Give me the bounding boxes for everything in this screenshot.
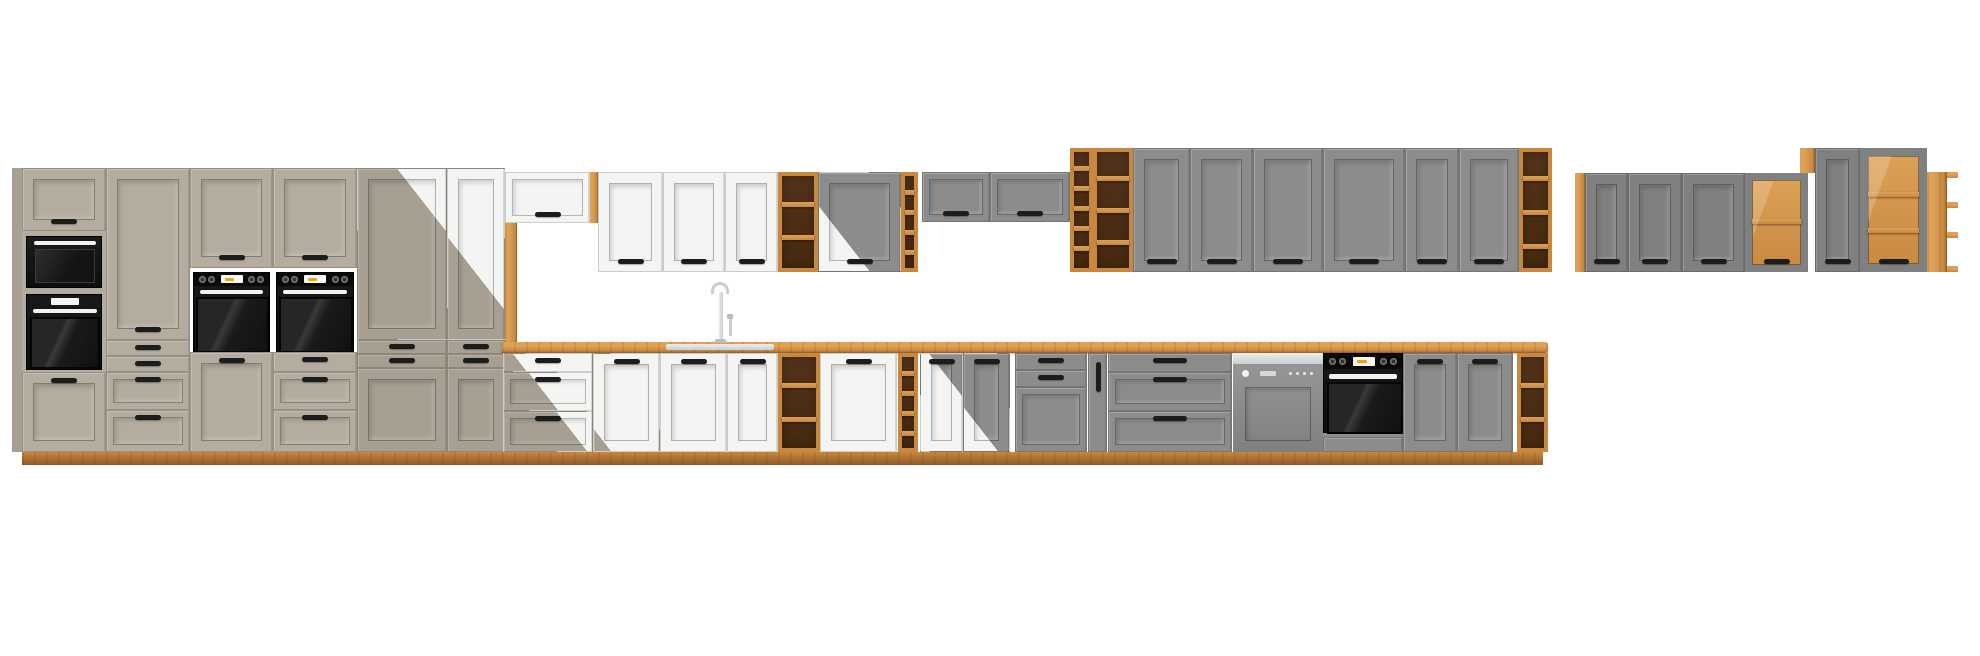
glass-wall-cabinet [1745,173,1808,272]
door-handle [681,259,707,264]
base-drawer [1108,372,1232,411]
larder-lower-door [357,368,447,452]
drawer-handle [1038,375,1064,380]
door-handle [1017,211,1043,216]
oak-open-end-shelf [1519,148,1552,272]
door-handle [681,359,707,364]
corner-shelf-arm [1947,266,1958,272]
oak-wall-wine-rack [901,172,918,272]
sink-base-door [727,353,778,452]
microwave [26,236,102,288]
oven-control-panel [277,273,353,286]
oven-handle-bar [283,290,347,294]
door-handle [1764,259,1790,264]
wall-door-seam [818,172,901,272]
door-handle [1594,259,1620,264]
flap-door [22,168,106,231]
wall-door [1682,173,1745,272]
larder-tall-door-seam [357,168,447,340]
door-handle [1701,259,1727,264]
faucet-base [715,339,726,343]
door-handle [1207,259,1237,264]
drawer [447,340,505,354]
wall-door [1405,148,1459,272]
wall-door [1459,148,1519,272]
drawer [357,354,447,368]
built-in-oven [1323,353,1403,433]
door-handle [614,359,640,364]
tall-glass-display-cabinet [1860,148,1927,272]
oven-housing [1323,353,1403,452]
oak-open-base-end-shelf [1517,353,1548,452]
oven-glass [1327,382,1403,434]
larder-lower-door [447,368,505,452]
door-handle [1417,259,1447,264]
door-handle [847,259,873,264]
pull-out-cargo [1088,353,1107,452]
oak-open-wall-shelf [778,172,818,272]
faucet-spray [729,319,732,336]
oven-unit-lower-door [190,352,273,452]
drawer-handle [1038,358,1064,363]
faucet-stem [719,292,723,343]
corner-shelf-arm [1947,202,1958,208]
door-handle [219,358,245,363]
drawer-handle [1153,416,1187,421]
base-drawer [1015,370,1087,387]
flap-wall-cabinet [922,172,990,222]
larder-tall-door-seam [447,168,505,340]
drawer-handle [389,344,415,349]
flap-wall-cabinet [990,172,1070,222]
wall-door [1133,148,1190,272]
base-door [22,372,106,452]
corner-shelf-arm [1947,172,1958,178]
cargo-handle [1096,362,1101,392]
oven-handle-bar [33,309,97,313]
drawer-handle [463,344,489,349]
door-handle [135,327,161,332]
base-drawer [1015,353,1087,370]
oak-side-strip [1575,173,1585,272]
base-drawer-seam [503,372,593,411]
door-handle [929,359,955,364]
sink-base-door [660,353,727,452]
drawer-handle [1153,358,1187,363]
drawer-handle [535,358,561,363]
door-handle [1417,359,1443,364]
oven-glass [30,317,100,369]
built-in-oven [193,272,270,352]
compact-oven [26,294,102,370]
drawer-handle [135,415,161,420]
drawer-handle [535,377,561,382]
drawer [106,340,190,356]
worktop [502,342,1548,353]
base-door-seam [920,353,963,452]
kitchen-product-render [0,0,1980,656]
dishwasher-logo [1260,371,1276,376]
dishwasher [1233,353,1323,452]
drawer-handle [135,361,161,366]
drawer-handle [302,357,328,362]
drawer-handle [463,358,489,363]
drawer [273,410,357,452]
dishwasher-control-strip [1233,353,1323,364]
base-door [593,353,660,452]
oven-unit-upper-door [273,168,357,268]
oven-unit-upper-door [190,168,273,268]
oven-handle-bar [1329,374,1397,379]
drawer [106,410,190,452]
door-handle [1474,259,1504,264]
drawer-handle [135,377,161,382]
door-handle [51,219,77,224]
drawer [357,340,447,354]
dishwasher-panel [1245,387,1311,441]
drawer-handle [535,416,561,421]
drawer-handle [302,415,328,420]
tall-run-side-panel [12,168,22,452]
drawer [106,372,190,410]
wall-door [1323,148,1405,272]
door-handle [974,359,1000,364]
door-handle [943,211,969,216]
oak-open-base-shelf [778,353,820,452]
door-handle [219,255,245,260]
door-handle [1147,259,1177,264]
door-handle [740,359,766,364]
tall-wall-door [1815,148,1860,272]
base-door-seam [963,353,1010,452]
wall-door [1253,148,1323,272]
wall-door [1628,173,1682,272]
base-drawer [1108,411,1232,452]
door-handle [51,378,77,383]
faucet-spray-head [727,314,733,319]
door-handle [846,359,872,364]
microwave-window [35,249,95,283]
door-handle [739,259,765,264]
wall-door [1190,148,1253,272]
oven-glass [196,297,269,353]
microwave-handle-bar [34,241,96,245]
oven-base-drawer [1323,437,1403,452]
drawer [273,352,357,372]
oven-glass [279,297,353,353]
drawer [447,354,505,368]
corner-shelf-board [1927,172,1947,272]
oak-top-block [1800,148,1815,173]
base-door [1015,387,1087,452]
built-in-oven [276,272,354,352]
drawer-handle [302,377,328,382]
wall-door [725,172,778,272]
door-handle [1642,259,1668,264]
base-door [1403,353,1457,452]
door-handle [1349,259,1379,264]
dishwasher-power-button [1242,370,1249,377]
drawer-handle [1153,377,1187,382]
oven-handle-bar [200,290,263,294]
sink [666,344,774,350]
oven-control-panel [194,273,269,286]
door-handle [1273,259,1303,264]
door-handle [1879,259,1909,264]
drawer [273,372,357,410]
over-fridge-flap-cabinet [505,172,590,223]
door-handle [302,255,328,260]
plinth [22,452,1543,465]
base-drawer-seam [503,353,593,372]
wall-door [1585,173,1628,272]
oak-end-strip [590,172,598,223]
base-drawer-seam [503,411,593,452]
door-handle [618,259,644,264]
door-handle [535,212,561,217]
base-drawer [1108,353,1232,372]
base-door [820,353,897,452]
door-handle [1472,359,1498,364]
drawer-handle [389,358,415,363]
drawer-handle [135,345,161,350]
door-handle [1825,259,1851,264]
wall-door [598,172,663,272]
oven-display [51,298,79,305]
oak-open-shelf [1093,148,1133,272]
larder-tall-door [106,168,190,340]
base-door [1457,353,1513,452]
corner-shelf-arm [1947,232,1958,238]
drawer [106,356,190,372]
wall-door [663,172,725,272]
oak-wine-rack-column [1070,148,1093,272]
oak-base-wine-rack [898,353,918,452]
oak-side-pillar [505,223,517,343]
